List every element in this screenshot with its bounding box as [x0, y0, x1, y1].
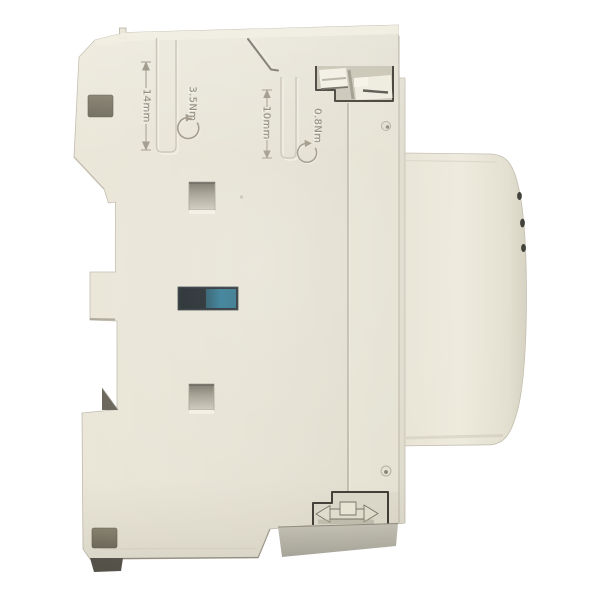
contactor-illustration [0, 0, 600, 600]
terminal-width-label: 10mm [261, 106, 272, 140]
top-torque-label: 3.5Nm [187, 86, 198, 121]
lighting-overlay [70, 20, 530, 565]
rail-width-label: 14mm [141, 89, 152, 123]
terminal-torque-label: 0.8Nm [312, 108, 323, 143]
product-photo-canvas: 14mm 3.5Nm 10mm 0.8Nm [0, 0, 600, 600]
